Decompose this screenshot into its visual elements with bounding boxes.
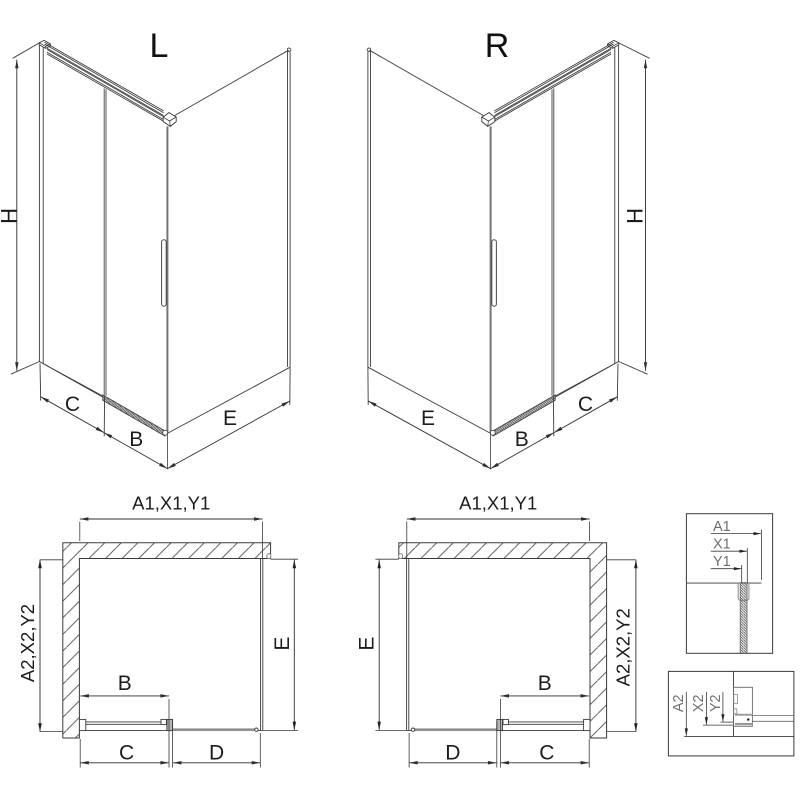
svg-text:C: C: [119, 742, 134, 765]
svg-text:C: C: [65, 393, 80, 416]
svg-text:A1,X1,Y1: A1,X1,Y1: [459, 492, 537, 513]
svg-text:E: E: [271, 637, 294, 651]
svg-text:Y2: Y2: [708, 694, 724, 712]
svg-text:X1: X1: [713, 537, 731, 553]
svg-text:A1: A1: [713, 519, 731, 535]
svg-text:B: B: [515, 428, 529, 451]
svg-text:A1,X1,Y1: A1,X1,Y1: [132, 492, 210, 513]
svg-text:A2,X2,Y2: A2,X2,Y2: [17, 604, 38, 682]
svg-text:D: D: [209, 742, 224, 765]
svg-text:L: L: [150, 27, 169, 65]
svg-text:X2: X2: [691, 694, 707, 712]
svg-text:H: H: [0, 208, 22, 224]
svg-text:E: E: [421, 407, 435, 430]
svg-text:H: H: [623, 208, 648, 224]
svg-text:Y1: Y1: [713, 554, 731, 570]
svg-text:B: B: [118, 672, 132, 695]
svg-text:C: C: [578, 393, 593, 416]
svg-text:C: C: [539, 742, 554, 765]
svg-text:D: D: [445, 742, 460, 765]
svg-text:R: R: [485, 27, 510, 65]
svg-text:B: B: [538, 672, 552, 695]
svg-text:E: E: [356, 637, 379, 651]
svg-text:A2,X2,Y2: A2,X2,Y2: [613, 608, 634, 686]
svg-text:E: E: [223, 407, 237, 430]
svg-text:A2: A2: [671, 694, 687, 712]
svg-text:B: B: [129, 428, 143, 451]
